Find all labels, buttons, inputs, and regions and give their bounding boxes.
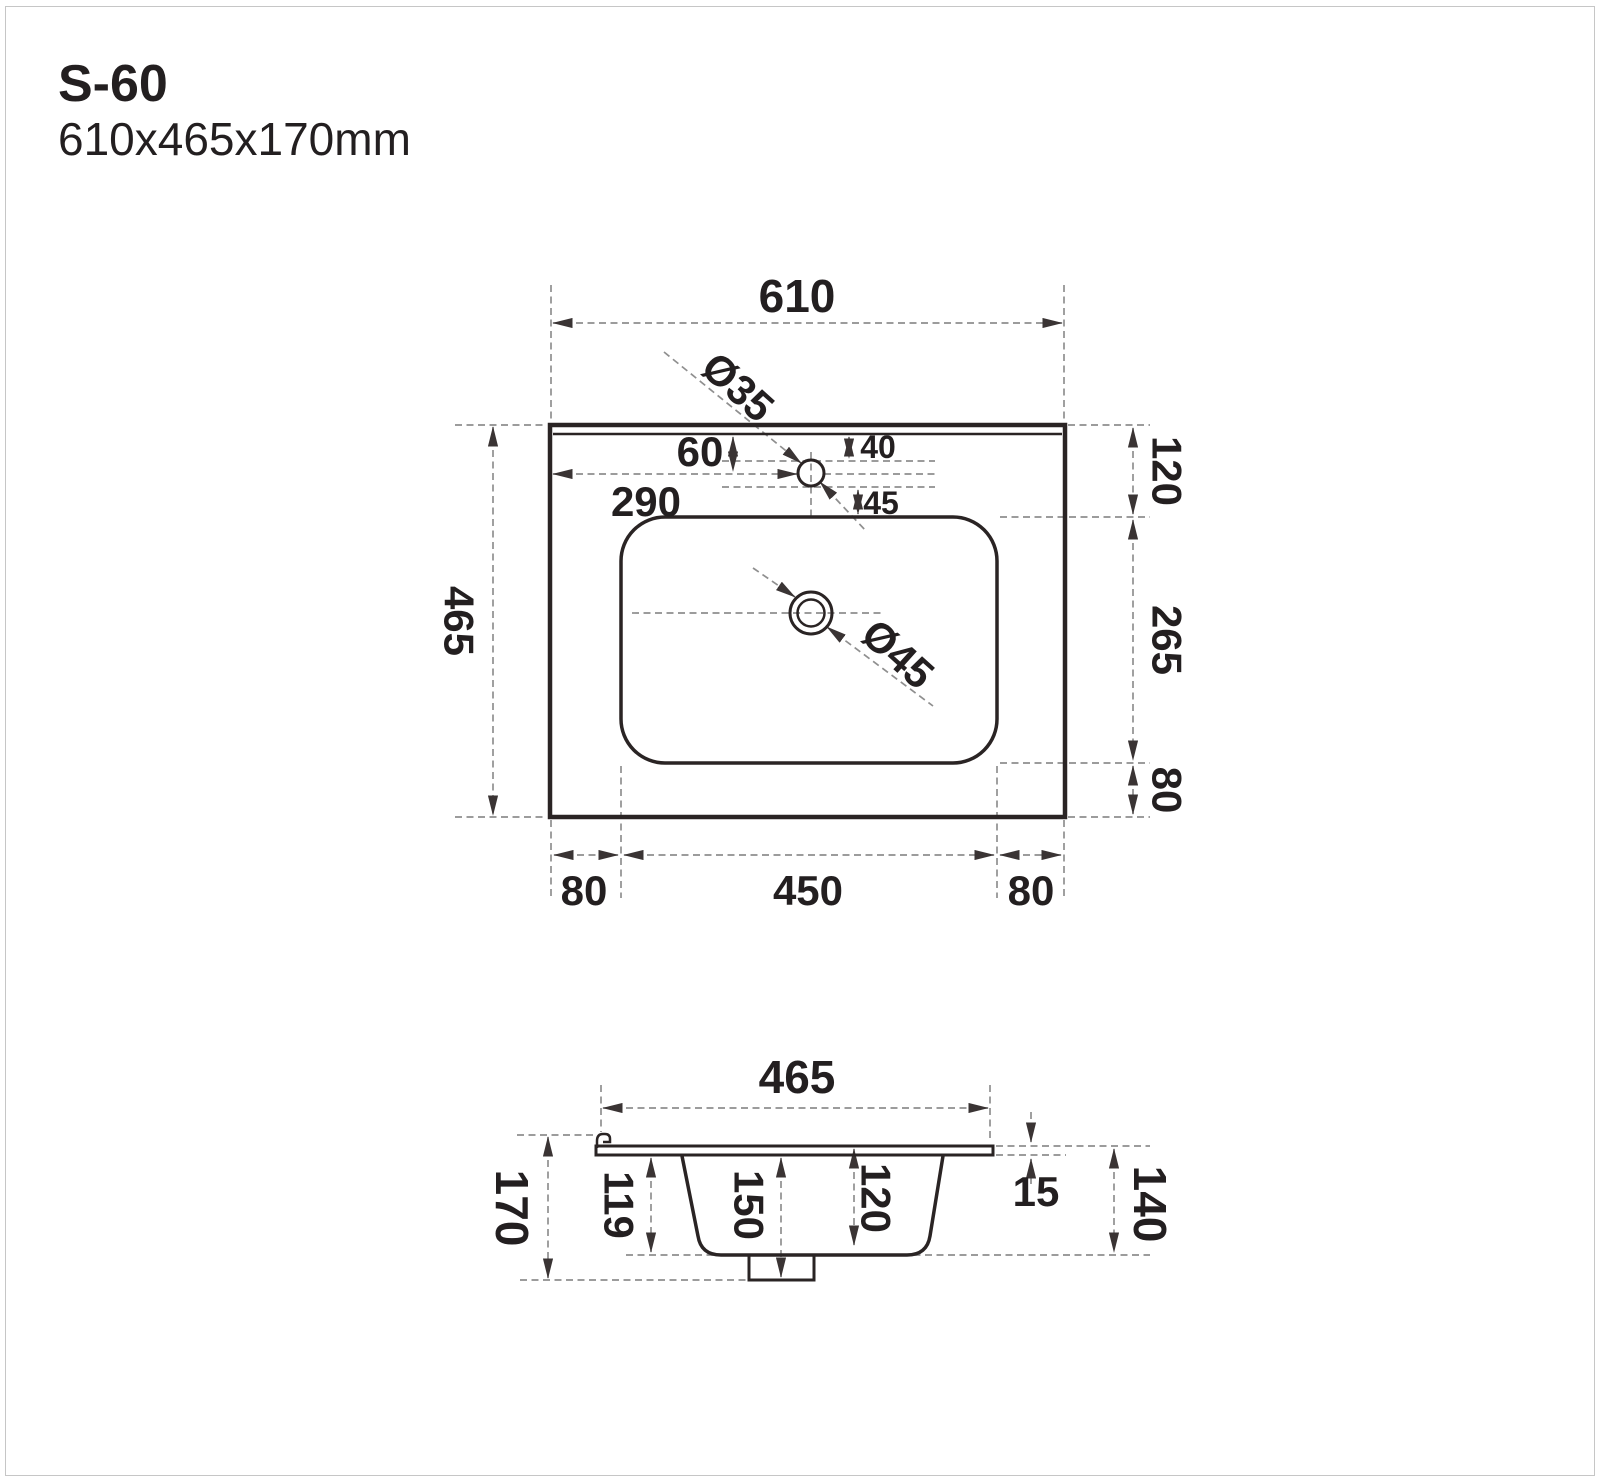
label-depth-465: 465 [436, 586, 483, 656]
countertop-slab [596, 1146, 993, 1155]
label-drain-150: 150 [726, 1170, 773, 1240]
label-width-610: 610 [759, 270, 836, 322]
top-view-extension-lines [455, 285, 1150, 898]
label-rim-15: 15 [1013, 1168, 1060, 1215]
label-right-265: 265 [1144, 605, 1191, 675]
label-depth-465: 465 [759, 1051, 836, 1103]
leader-drain-dia-upper [753, 568, 795, 597]
label-front-80-left: 80 [561, 867, 608, 914]
side-view: 465 170 119 150 120 15 140 [486, 1051, 1176, 1280]
label-front-450: 450 [773, 867, 843, 914]
label-right-120: 120 [1144, 436, 1191, 506]
label-hole-45: 45 [863, 485, 899, 521]
label-height-170: 170 [486, 1170, 538, 1247]
basin-outline [621, 517, 997, 763]
label-back-140: 140 [1124, 1166, 1176, 1243]
bowl-profile [682, 1156, 943, 1255]
label-drain-dia: Ø45 [853, 610, 943, 698]
drawing-canvas: S-60 610x465x170mm [0, 0, 1600, 1482]
title-block: S-60 610x465x170mm [58, 55, 411, 165]
label-hole-40: 40 [860, 429, 896, 465]
label-right-80: 80 [1144, 767, 1191, 814]
label-front-80-right: 80 [1008, 867, 1055, 914]
top-view-dimension-lines [493, 323, 1133, 855]
label-faucet-60: 60 [677, 428, 724, 475]
model-name: S-60 [58, 55, 168, 113]
label-faucet-dia: Ø35 [693, 343, 783, 431]
side-view-geometry [596, 1134, 993, 1280]
top-view: 610 Ø35 60 40 290 45 465 Ø45 120 265 80 … [436, 270, 1191, 914]
side-view-labels: 465 170 119 150 120 15 140 [486, 1051, 1176, 1246]
overall-dimensions: 610x465x170mm [58, 113, 411, 165]
label-inner-120: 120 [853, 1163, 900, 1233]
label-faucet-290: 290 [611, 478, 681, 525]
label-bowl-119: 119 [596, 1171, 643, 1239]
leader-faucet-dia-lower [820, 482, 867, 532]
technical-drawing: S-60 610x465x170mm [0, 0, 1600, 1482]
